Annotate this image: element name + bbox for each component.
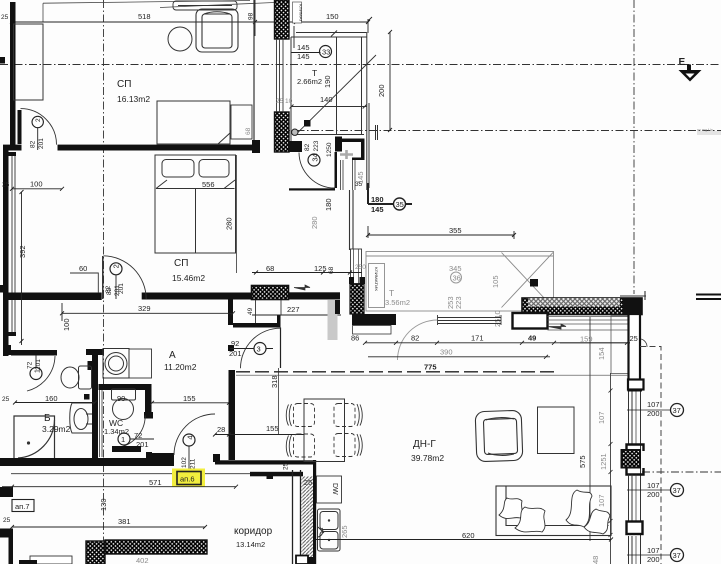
svg-text:А: А [169, 350, 176, 361]
svg-text:1251: 1251 [599, 453, 608, 470]
svg-text:82: 82 [30, 140, 37, 148]
svg-text:201: 201 [38, 138, 45, 149]
svg-text:145: 145 [297, 43, 310, 52]
svg-text:Т: Т [389, 288, 394, 298]
svg-text:107: 107 [647, 481, 660, 490]
svg-text:223: 223 [454, 296, 463, 309]
svg-text:280: 280 [310, 216, 319, 229]
svg-text:571: 571 [149, 478, 162, 487]
svg-text:ДН-Г: ДН-Г [413, 439, 436, 450]
svg-text:3.29m2: 3.29m2 [42, 424, 71, 434]
svg-text:37: 37 [673, 406, 681, 415]
svg-text:318: 318 [270, 375, 279, 388]
svg-text:82: 82 [304, 143, 311, 151]
svg-text:16.13m2: 16.13m2 [117, 94, 150, 104]
svg-text:13.14m2: 13.14m2 [236, 540, 265, 549]
svg-text:72: 72 [134, 431, 142, 440]
svg-text:171: 171 [471, 334, 484, 343]
svg-text:37: 37 [673, 486, 681, 495]
svg-text:130: 130 [99, 498, 108, 511]
svg-text:35: 35 [355, 181, 363, 188]
svg-text:155: 155 [183, 394, 196, 403]
svg-text:3.56m2: 3.56m2 [385, 298, 410, 307]
svg-text:159: 159 [580, 335, 593, 344]
svg-text:10: 10 [285, 98, 293, 105]
svg-text:250: 250 [355, 264, 366, 271]
svg-text:575: 575 [578, 455, 587, 468]
svg-text:107: 107 [647, 400, 660, 409]
svg-text:140: 140 [320, 95, 333, 104]
svg-text:155: 155 [266, 424, 279, 433]
svg-text:160: 160 [45, 394, 58, 403]
svg-text:200: 200 [377, 84, 386, 97]
svg-text:3: 3 [257, 345, 261, 354]
svg-text:49: 49 [528, 334, 536, 343]
svg-text:200: 200 [647, 409, 660, 418]
svg-text:36: 36 [453, 274, 461, 283]
svg-text:223: 223 [313, 140, 320, 151]
svg-text:100: 100 [62, 318, 71, 331]
svg-text:DW: DW [331, 483, 338, 495]
svg-text:201: 201 [114, 285, 121, 296]
svg-text:68: 68 [328, 266, 335, 274]
svg-text:211: 211 [190, 458, 197, 469]
svg-text:25: 25 [1, 14, 9, 21]
svg-text:82: 82 [411, 334, 419, 343]
svg-text:107: 107 [647, 546, 660, 555]
svg-text:25: 25 [630, 334, 638, 343]
svg-text:90: 90 [117, 394, 125, 403]
svg-text:25: 25 [2, 396, 10, 403]
svg-text:68: 68 [266, 264, 274, 273]
svg-text:392: 392 [18, 245, 27, 258]
svg-text:ап.7: ап.7 [15, 502, 30, 511]
svg-text:1.34m2: 1.34m2 [104, 427, 129, 436]
svg-text:92: 92 [231, 339, 239, 348]
svg-text:556: 556 [202, 180, 215, 189]
svg-text:25: 25 [276, 98, 284, 105]
svg-text:329: 329 [138, 304, 151, 313]
svg-text:E: E [679, 57, 686, 68]
svg-text:86: 86 [351, 334, 359, 343]
svg-text:2: 2 [35, 118, 42, 122]
svg-text:2.66m2: 2.66m2 [297, 77, 322, 86]
svg-text:180: 180 [371, 195, 384, 204]
svg-text:154: 154 [597, 347, 606, 360]
svg-text:402: 402 [136, 556, 149, 564]
svg-text:150: 150 [326, 12, 339, 21]
svg-text:48: 48 [591, 556, 600, 564]
svg-text:15.46m2: 15.46m2 [172, 273, 205, 283]
svg-text:34: 34 [311, 153, 320, 161]
svg-text:4: 4 [186, 435, 195, 439]
svg-text:201: 201 [229, 349, 242, 358]
svg-text:72: 72 [27, 361, 34, 369]
svg-text:КЛИМАТ: КЛИМАТ [299, 4, 303, 23]
svg-text:620: 620 [462, 531, 475, 540]
svg-text:125: 125 [314, 264, 327, 273]
svg-text:1: 1 [121, 435, 125, 444]
svg-text:107: 107 [597, 411, 606, 424]
svg-text:145: 145 [297, 52, 310, 61]
svg-text:35: 35 [396, 200, 404, 209]
svg-text:102: 102 [181, 457, 188, 468]
svg-text:200: 200 [647, 555, 660, 564]
svg-text:265: 265 [340, 525, 349, 538]
svg-text:100: 100 [30, 180, 43, 189]
svg-text:145: 145 [371, 205, 384, 214]
svg-text:390: 390 [440, 348, 453, 357]
svg-text:381: 381 [118, 517, 131, 526]
svg-text:280: 280 [225, 217, 234, 230]
svg-text:СП: СП [174, 258, 188, 269]
svg-text:коридор: коридор [234, 526, 273, 537]
svg-text:no reg f-la: no reg f-la [697, 128, 713, 132]
svg-text:25: 25 [2, 182, 10, 189]
svg-text:200: 200 [647, 490, 660, 499]
svg-text:227: 227 [287, 305, 300, 314]
svg-text:25: 25 [283, 462, 290, 470]
svg-text:СП: СП [117, 79, 131, 90]
svg-text:60: 60 [79, 264, 87, 273]
svg-text:39.78m2: 39.78m2 [411, 453, 444, 463]
svg-text:25: 25 [3, 517, 11, 524]
svg-text:355: 355 [449, 226, 462, 235]
svg-text:ап.6: ап.6 [180, 475, 195, 484]
svg-text:Б: Б [44, 413, 51, 424]
svg-text:1250: 1250 [326, 142, 333, 157]
svg-text:28: 28 [217, 425, 225, 434]
svg-text:82: 82 [106, 287, 113, 295]
svg-text:180: 180 [324, 198, 333, 211]
svg-text:775: 775 [424, 363, 437, 372]
svg-text:107: 107 [597, 494, 606, 507]
svg-text:11.20m2: 11.20m2 [164, 362, 197, 372]
svg-text:201: 201 [35, 359, 42, 370]
svg-text:190: 190 [323, 75, 332, 88]
svg-text:КЛИМАТИК: КЛИМАТИК [374, 267, 378, 292]
svg-text:518: 518 [138, 12, 151, 21]
svg-text:2: 2 [112, 264, 121, 268]
svg-text:68: 68 [245, 127, 252, 135]
svg-text:37: 37 [673, 551, 681, 560]
svg-text:33: 33 [322, 48, 330, 57]
svg-text:105: 105 [491, 275, 500, 288]
svg-text:49: 49 [247, 307, 254, 315]
